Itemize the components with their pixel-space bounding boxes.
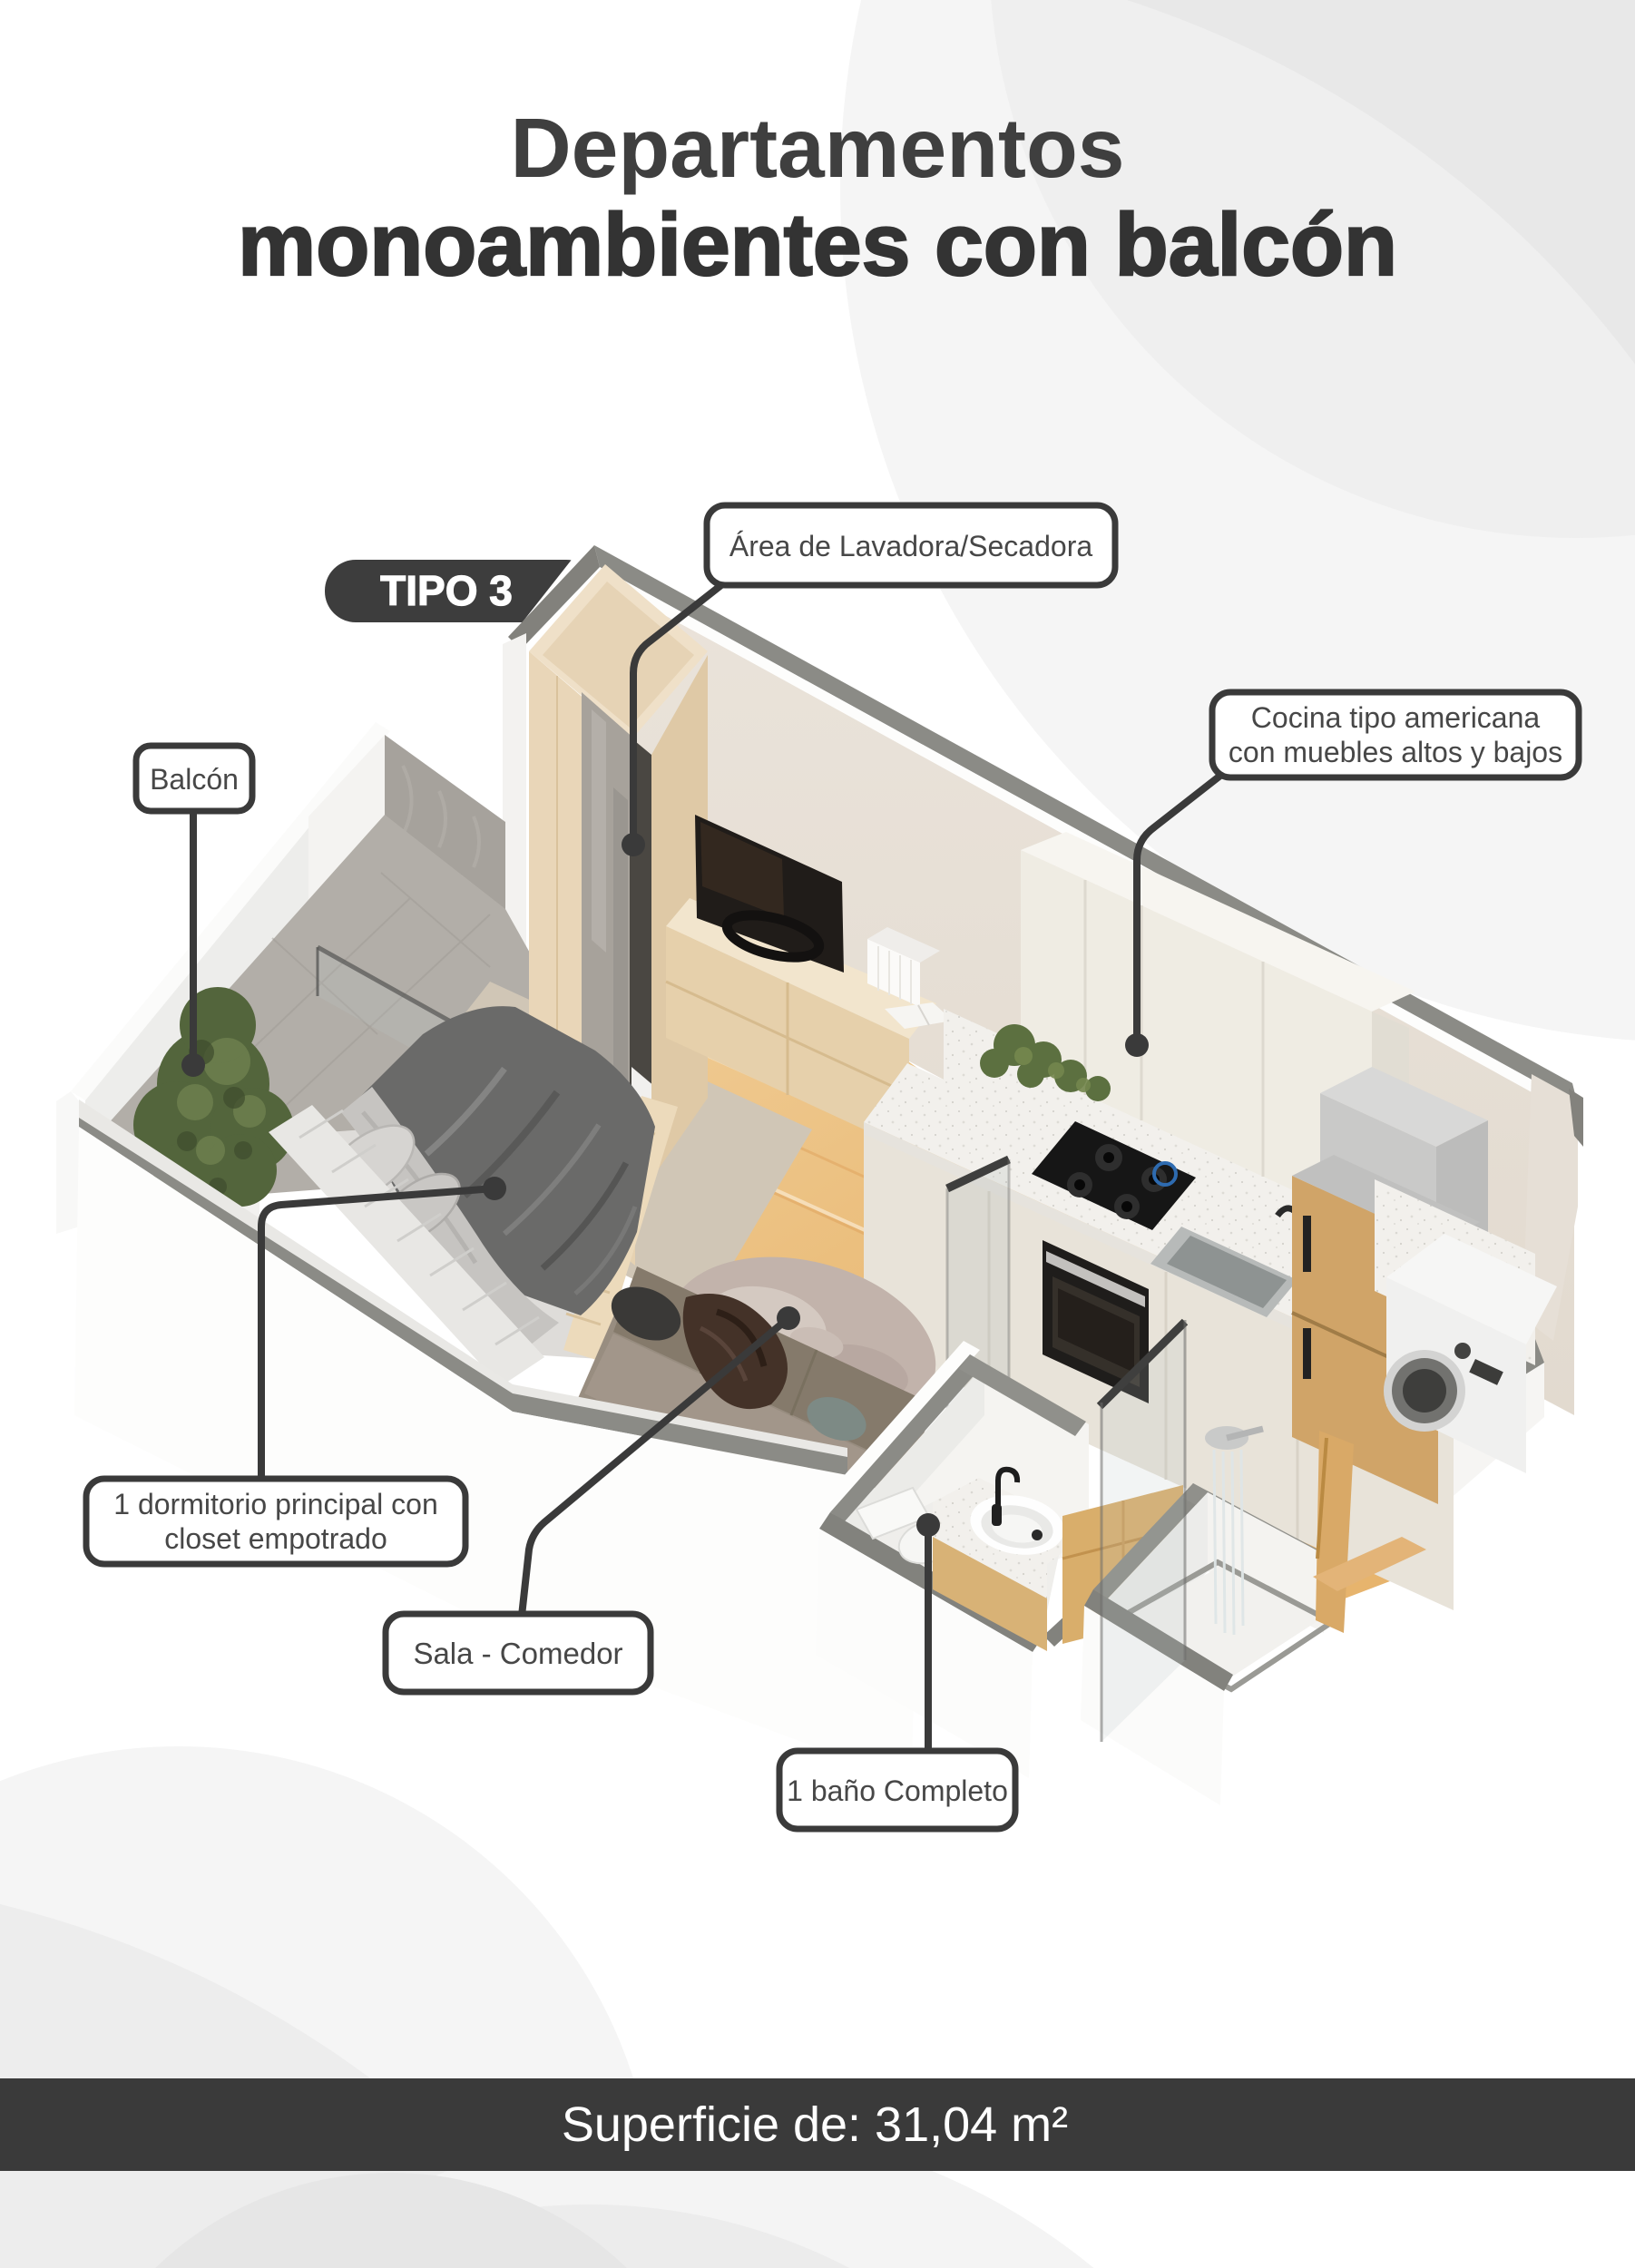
svg-text:Cocina tipo americana: Cocina tipo americana — [1251, 701, 1541, 734]
svg-text:1 baño Completo: 1 baño Completo — [787, 1774, 1008, 1807]
svg-text:1 dormitorio principal con: 1 dormitorio principal con — [113, 1488, 438, 1520]
svg-text:Superficie de: 31,04 m²: Superficie de: 31,04 m² — [562, 2097, 1068, 2152]
svg-text:monoambientes con balcón: monoambientes con balcón — [238, 195, 1397, 294]
svg-text:Departamentos: Departamentos — [510, 101, 1124, 195]
svg-text:closet empotrado: closet empotrado — [164, 1522, 387, 1555]
svg-text:Sala - Comedor: Sala - Comedor — [413, 1637, 622, 1670]
svg-text:TIPO 3: TIPO 3 — [380, 567, 513, 614]
svg-text:con muebles altos y bajos: con muebles altos y bajos — [1229, 736, 1562, 768]
svg-text:Balcón: Balcón — [150, 763, 239, 796]
svg-text:Área de Lavadora/Secadora: Área de Lavadora/Secadora — [729, 530, 1092, 562]
